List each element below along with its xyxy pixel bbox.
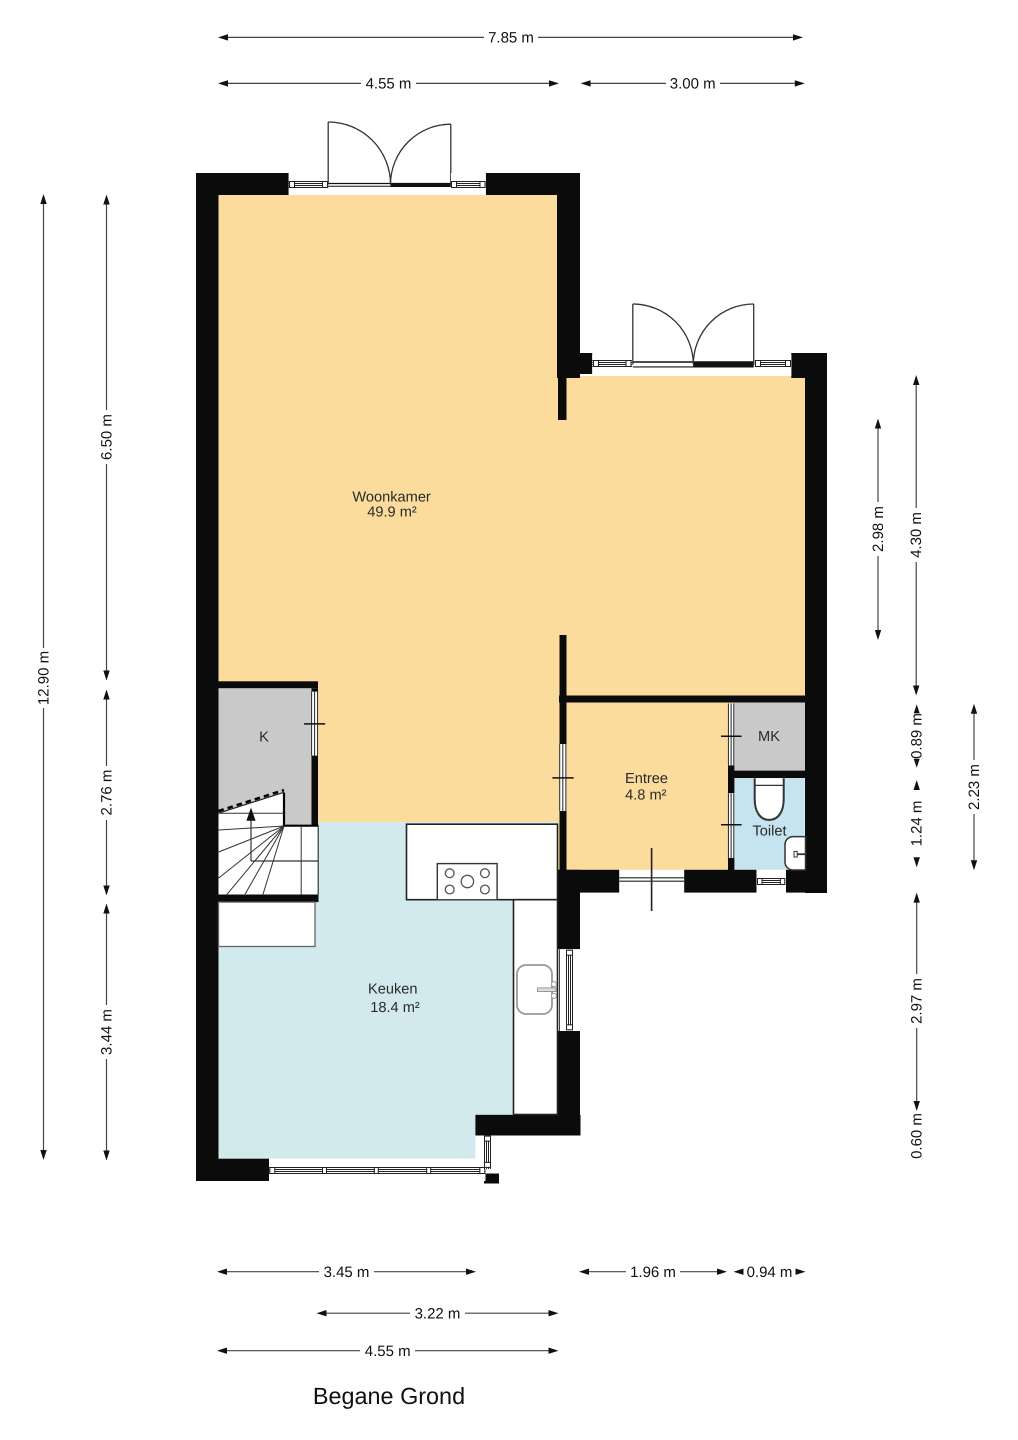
svg-text:Toilet: Toilet xyxy=(752,824,786,840)
svg-text:1.96 m: 1.96 m xyxy=(630,1264,676,1281)
svg-text:18.4 m²: 18.4 m² xyxy=(370,1000,420,1016)
svg-text:Entree: Entree xyxy=(625,771,668,787)
svg-text:49.9 m²: 49.9 m² xyxy=(367,505,417,521)
svg-text:6.50 m: 6.50 m xyxy=(99,414,116,460)
svg-text:MK: MK xyxy=(758,729,780,745)
svg-text:2.98 m: 2.98 m xyxy=(870,506,887,552)
svg-text:0.60 m: 0.60 m xyxy=(909,1113,926,1159)
svg-text:Woonkamer: Woonkamer xyxy=(352,490,431,506)
svg-text:4.8 m²: 4.8 m² xyxy=(625,788,666,804)
svg-text:3.44 m: 3.44 m xyxy=(99,1009,116,1055)
svg-text:0.89 m: 0.89 m xyxy=(909,713,926,759)
svg-text:12.90 m: 12.90 m xyxy=(36,651,53,705)
svg-text:2.76 m: 2.76 m xyxy=(99,770,116,816)
svg-text:1.24 m: 1.24 m xyxy=(909,801,926,847)
svg-text:Begane Grond: Begane Grond xyxy=(313,1383,465,1409)
svg-text:0.94 m: 0.94 m xyxy=(747,1264,793,1281)
svg-text:3.22 m: 3.22 m xyxy=(415,1305,461,1322)
svg-text:3.45 m: 3.45 m xyxy=(324,1264,370,1281)
svg-text:2.97 m: 2.97 m xyxy=(909,978,926,1024)
svg-text:3.00 m: 3.00 m xyxy=(670,76,716,93)
svg-text:2.23 m: 2.23 m xyxy=(966,764,983,810)
svg-text:4.55 m: 4.55 m xyxy=(365,1343,411,1360)
svg-text:4.55 m: 4.55 m xyxy=(366,76,412,93)
svg-text:7.85 m: 7.85 m xyxy=(488,30,534,47)
svg-text:4.30 m: 4.30 m xyxy=(908,512,925,558)
svg-text:Keuken: Keuken xyxy=(368,982,418,998)
svg-text:K: K xyxy=(259,730,269,746)
